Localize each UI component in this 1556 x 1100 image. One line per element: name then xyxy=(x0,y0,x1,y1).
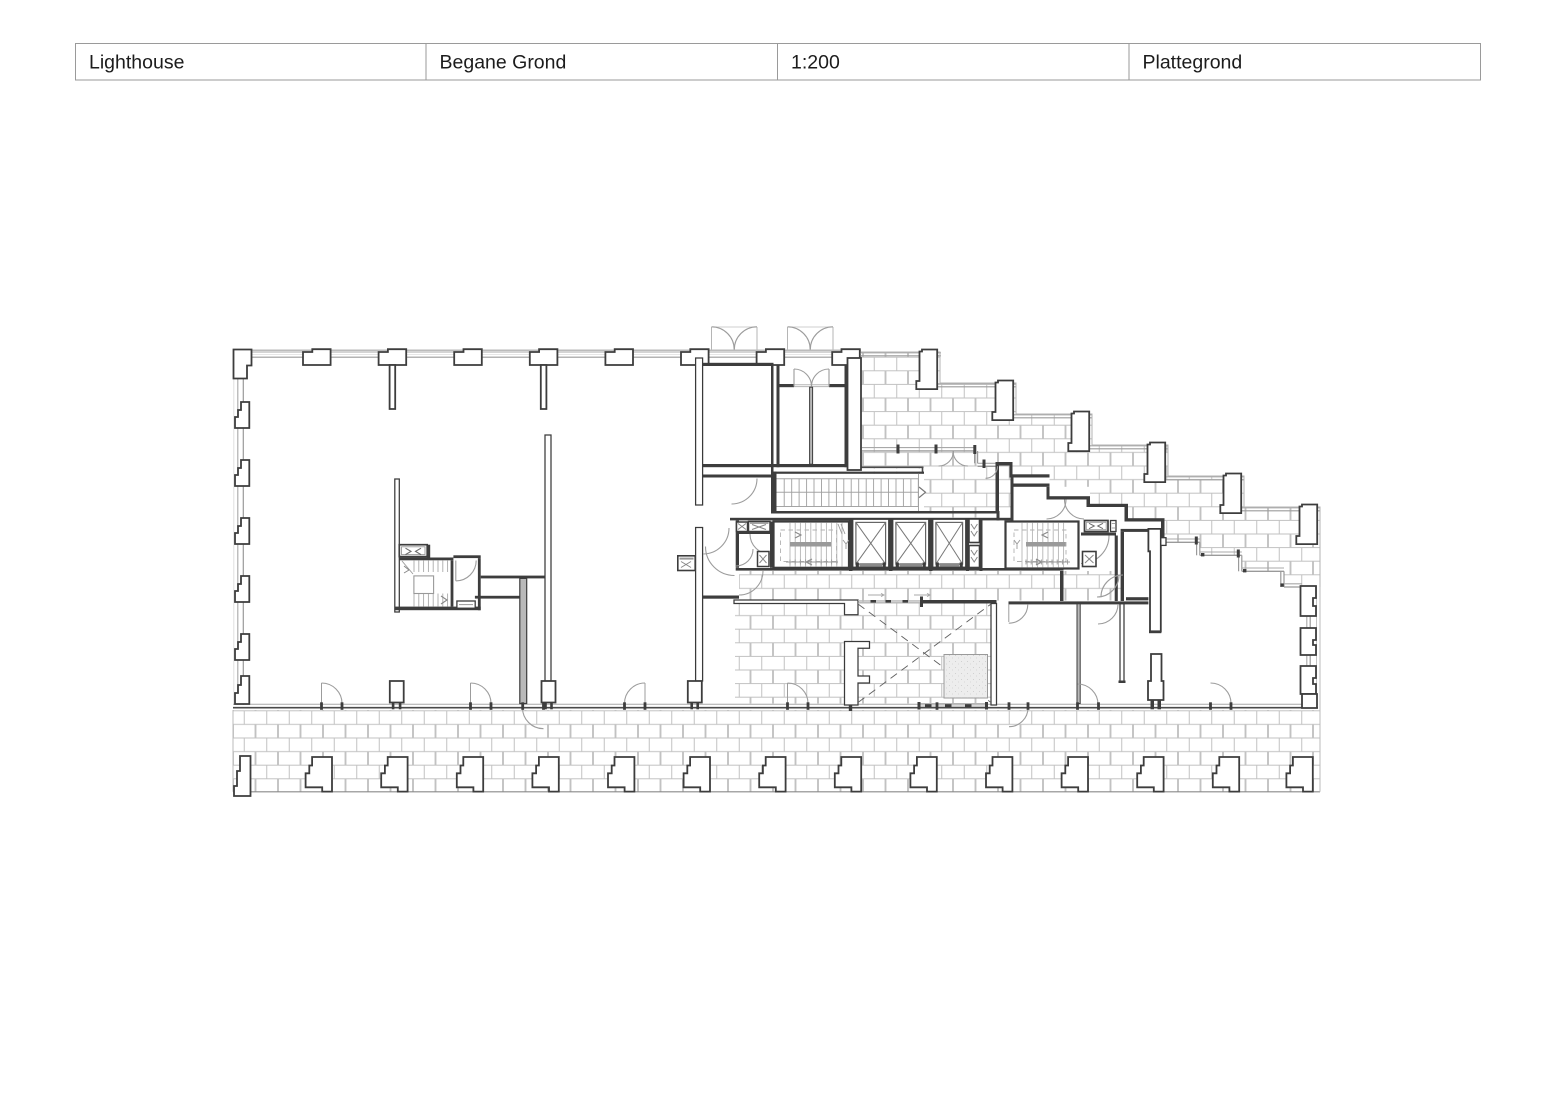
svg-text:Lighthouse: Lighthouse xyxy=(89,52,184,74)
svg-text:Plattegrond: Plattegrond xyxy=(1143,52,1243,74)
svg-text:Begane Grond: Begane Grond xyxy=(440,52,567,74)
svg-text:1:200: 1:200 xyxy=(791,52,840,74)
